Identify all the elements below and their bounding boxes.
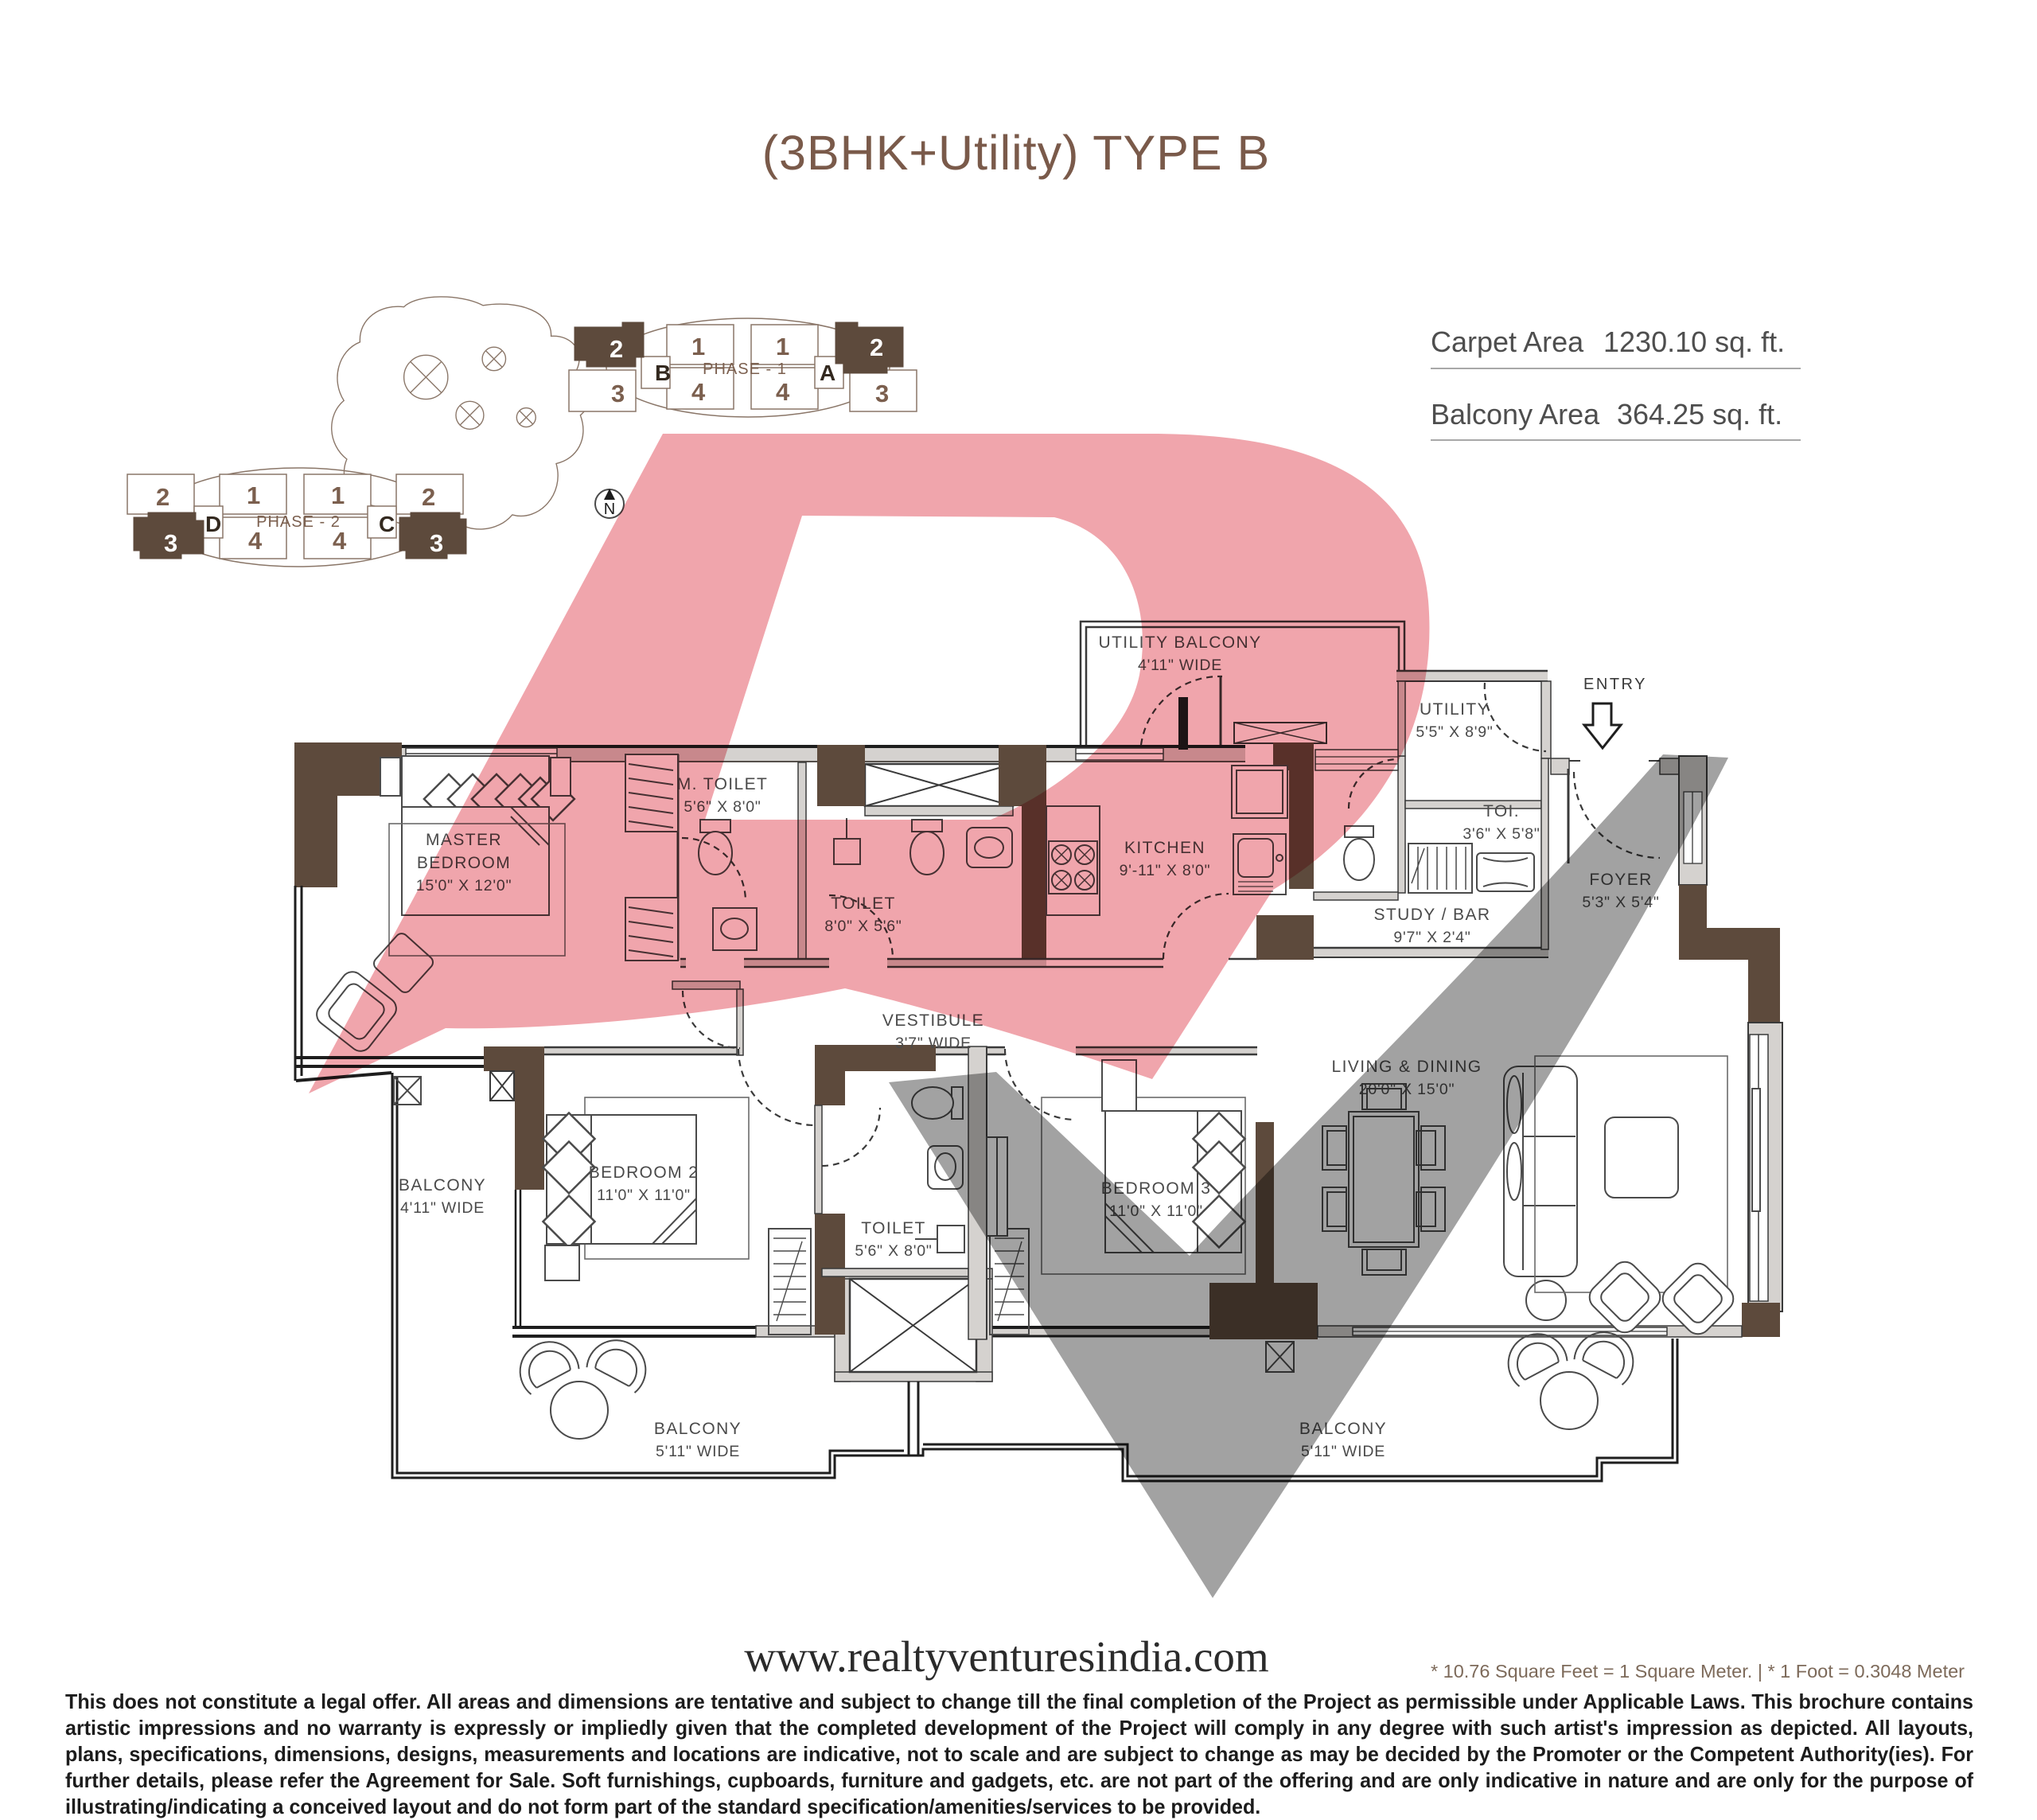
svg-text:PHASE - 2: PHASE - 2 bbox=[256, 513, 341, 531]
svg-text:4: 4 bbox=[691, 378, 706, 406]
svg-text:1: 1 bbox=[331, 481, 345, 509]
svg-text:5'11" WIDE: 5'11" WIDE bbox=[1301, 1443, 1385, 1460]
svg-text:1: 1 bbox=[691, 333, 705, 360]
svg-text:TOI.: TOI. bbox=[1483, 802, 1520, 820]
svg-text:4: 4 bbox=[333, 527, 347, 555]
svg-text:(3BHK+Utility) TYPE B: (3BHK+Utility) TYPE B bbox=[762, 126, 1271, 180]
svg-text:B: B bbox=[655, 360, 671, 385]
svg-text:9'7" X 2'4": 9'7" X 2'4" bbox=[1393, 929, 1470, 946]
svg-text:PHASE - 1: PHASE - 1 bbox=[703, 360, 787, 378]
svg-text:N: N bbox=[604, 501, 615, 518]
svg-text:ENTRY: ENTRY bbox=[1583, 676, 1647, 693]
svg-text:2: 2 bbox=[156, 483, 169, 511]
svg-text:5'6" X 8'0": 5'6" X 8'0" bbox=[855, 1242, 932, 1260]
svg-text:11'0" X 11'0": 11'0" X 11'0" bbox=[597, 1187, 691, 1204]
svg-text:* 10.76 Square Feet = 1 Squar: * 10.76 Square Feet = 1 Square Meter. | … bbox=[1431, 1661, 1965, 1682]
svg-text:BALCONY: BALCONY bbox=[654, 1420, 742, 1438]
svg-text:D: D bbox=[205, 512, 221, 536]
svg-text:364.25 sq. ft.: 364.25 sq. ft. bbox=[1617, 398, 1782, 431]
svg-text:2: 2 bbox=[422, 483, 435, 511]
svg-text:5'11" WIDE: 5'11" WIDE bbox=[656, 1443, 740, 1460]
svg-text:3: 3 bbox=[611, 380, 625, 407]
svg-text:C: C bbox=[379, 512, 395, 536]
svg-text:3'6" X 5'8": 3'6" X 5'8" bbox=[1463, 825, 1540, 843]
svg-text:3'7" WIDE: 3'7" WIDE bbox=[895, 1035, 972, 1052]
svg-text:5'5" X 8'9": 5'5" X 8'9" bbox=[1416, 723, 1493, 741]
svg-text:4: 4 bbox=[248, 527, 263, 555]
svg-text:A: A bbox=[820, 360, 835, 385]
svg-text:4'11" WIDE: 4'11" WIDE bbox=[400, 1199, 485, 1217]
svg-text:2: 2 bbox=[870, 333, 883, 361]
svg-text:BALCONY: BALCONY bbox=[399, 1176, 486, 1194]
svg-text:www.realtyventuresindia.com: www.realtyventuresindia.com bbox=[744, 1632, 1268, 1681]
svg-text:3: 3 bbox=[164, 529, 177, 557]
svg-text:BEDROOM 2: BEDROOM 2 bbox=[589, 1163, 699, 1182]
svg-text:Carpet Area: Carpet Area bbox=[1431, 325, 1584, 358]
svg-text:TOILET: TOILET bbox=[861, 1219, 926, 1237]
svg-text:1: 1 bbox=[247, 481, 260, 509]
svg-text:4: 4 bbox=[776, 378, 790, 406]
svg-text:UTILITY: UTILITY bbox=[1420, 700, 1490, 719]
svg-text:3: 3 bbox=[430, 529, 443, 557]
svg-text:STUDY / BAR: STUDY / BAR bbox=[1374, 906, 1491, 924]
svg-text:2: 2 bbox=[610, 335, 623, 363]
svg-text:1230.10 sq. ft.: 1230.10 sq. ft. bbox=[1603, 325, 1785, 358]
svg-text:1: 1 bbox=[776, 333, 789, 360]
svg-text:3: 3 bbox=[875, 380, 889, 407]
svg-text:Balcony Area: Balcony Area bbox=[1431, 398, 1600, 431]
